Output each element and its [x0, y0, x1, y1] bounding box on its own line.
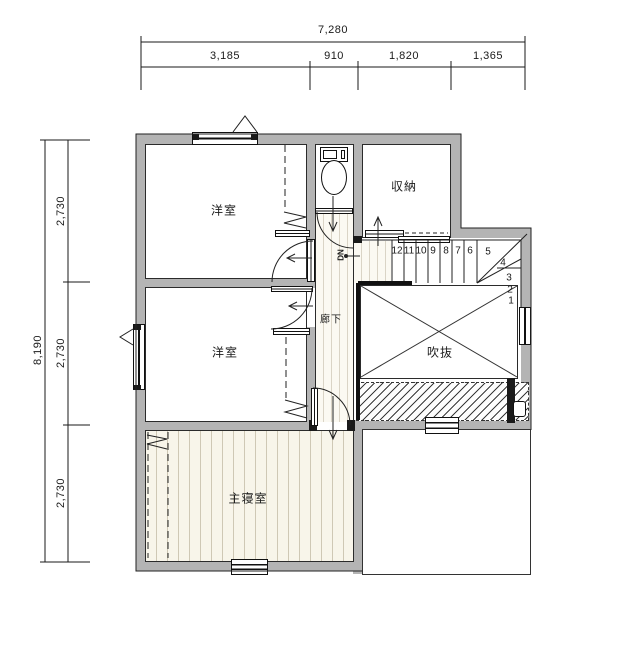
dim-top-seg-2: 910 — [324, 50, 344, 62]
stair-step-number: 5 — [485, 247, 491, 258]
stair-top-rail — [398, 236, 450, 243]
window-left — [133, 324, 145, 390]
door-leaf-western2 — [271, 286, 313, 292]
closet2-front — [273, 328, 310, 335]
stair-step-number: 10 — [415, 246, 426, 257]
window-right — [519, 307, 531, 345]
window-master-bottom — [231, 559, 268, 575]
stair-step-number: 2 — [507, 285, 513, 296]
window-top-post-left — [193, 134, 199, 140]
wall-right-upper — [521, 228, 531, 307]
stair-step-number: 4 — [500, 258, 506, 269]
label-stairs-down: DN — [337, 249, 346, 261]
wall-top-left — [136, 134, 192, 144]
door-leaf-western1 — [307, 239, 315, 282]
door-leaf-master — [311, 388, 318, 426]
stair-step-number: 9 — [430, 246, 436, 257]
stair-step-number: 7 — [455, 246, 461, 257]
label-western-room-2: 洋室 — [212, 344, 238, 361]
wall-master-bottom-right — [268, 561, 362, 571]
dim-top-seg-3: 1,820 — [389, 50, 419, 62]
dim-left-seg-3: 2,730 — [55, 478, 67, 508]
toilet-bowl — [321, 160, 347, 195]
balcony — [356, 382, 529, 421]
stair-step-number: 6 — [467, 246, 473, 257]
window-top-post-right — [251, 134, 257, 140]
label-void: 吹抜 — [427, 344, 453, 361]
label-storage: 収納 — [391, 178, 417, 195]
stair-step-number: 11 — [404, 246, 414, 257]
wall-master-right — [353, 421, 362, 574]
dim-total-width: 7,280 — [318, 24, 348, 36]
window-top — [192, 132, 258, 145]
balcony-drain — [513, 401, 526, 417]
label-master-bedroom: 主寝室 — [228, 490, 267, 507]
stair-step-number: 8 — [443, 246, 449, 257]
stair-step-number: 12 — [391, 246, 402, 257]
dim-left-seg-2: 2,730 — [55, 338, 67, 368]
toilet-flush-button — [341, 150, 345, 159]
dim-top-seg-4: 1,365 — [473, 50, 503, 62]
stair-step-number: 3 — [506, 273, 512, 284]
stair-step-number: 1 — [508, 296, 514, 307]
wall-storage-right — [451, 134, 461, 238]
stair-landing — [354, 241, 391, 283]
floor-plan: 7,280 3,185 910 1,820 1,365 8,190 2,730 … — [0, 0, 624, 667]
wall-post — [353, 236, 362, 243]
toilet-tank-lid — [323, 150, 337, 159]
dim-top-seg-1: 3,185 — [210, 50, 240, 62]
wall-notch-top — [451, 228, 530, 238]
door-post-right — [347, 420, 355, 431]
wall-wc-storage — [353, 134, 362, 236]
wall-master-bottom-left — [136, 561, 231, 571]
label-western-room-1: 洋室 — [211, 202, 237, 219]
lower-roof-area — [362, 429, 531, 575]
window-left-post-bottom — [134, 385, 141, 390]
balcony-step — [425, 417, 459, 434]
closet1-front — [275, 230, 310, 237]
wc-threshold — [315, 208, 353, 214]
void-atrium — [360, 285, 518, 379]
dim-total-height: 8,190 — [32, 335, 44, 365]
dim-left-seg-1: 2,730 — [55, 196, 67, 226]
label-hallway: 廊下 — [320, 311, 342, 326]
window-left-post-top — [134, 325, 141, 330]
